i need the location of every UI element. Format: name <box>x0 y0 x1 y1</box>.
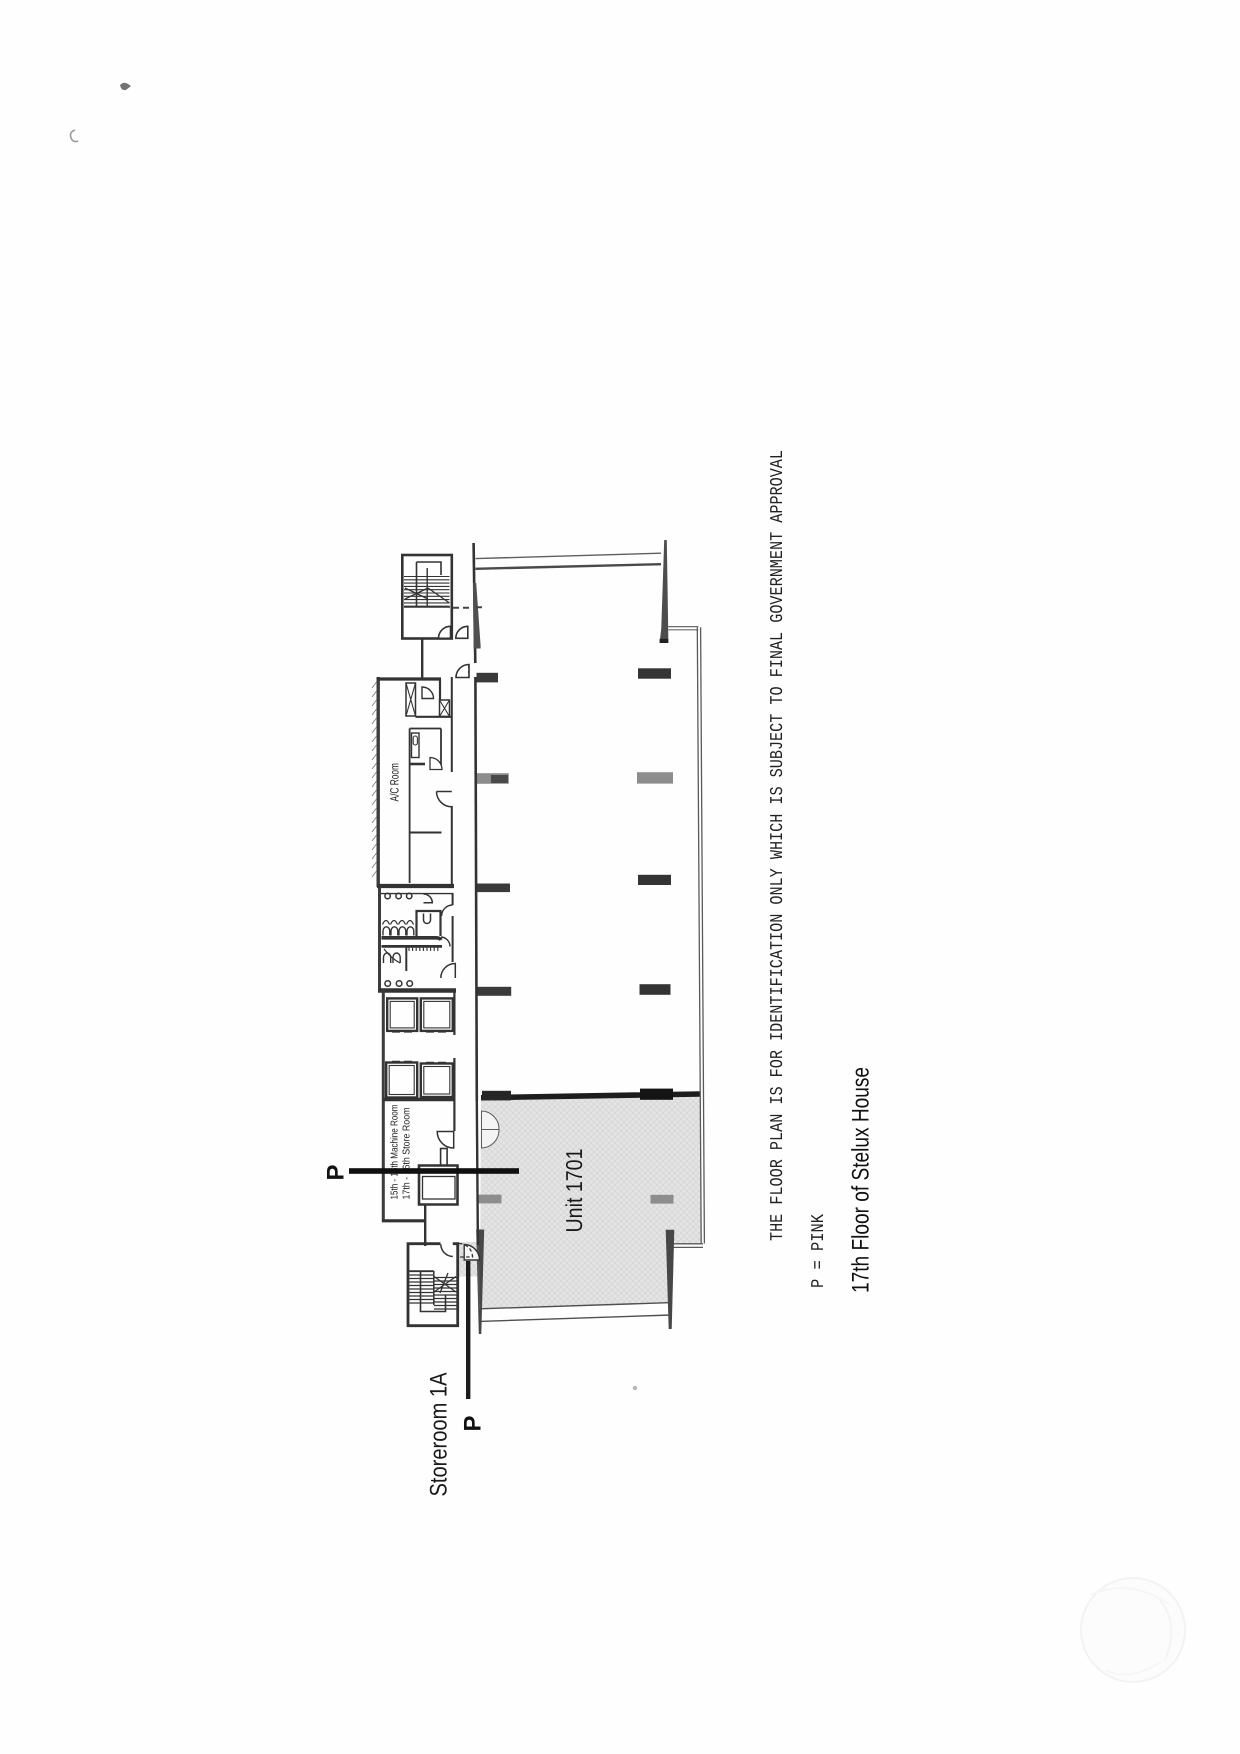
svg-text:P: P <box>460 1415 487 1431</box>
svg-text:Unit 1701: Unit 1701 <box>561 1149 587 1233</box>
svg-text:15th - 16th Machine Room: 15th - 16th Machine Room <box>390 1105 401 1200</box>
svg-text:P = PINK: P = PINK <box>809 1214 829 1288</box>
svg-text:THE FLOOR PLAN IS FOR IDENTIFI: THE FLOOR PLAN IS FOR IDENTIFICATION ONL… <box>768 450 788 1241</box>
svg-text:17th Floor of Stelux House: 17th Floor of Stelux House <box>848 1067 875 1293</box>
svg-text:Storeroom 1A: Storeroom 1A <box>426 1373 453 1497</box>
svg-text:A/C Room: A/C Room <box>388 763 402 802</box>
svg-text:17th - 16th Store Room: 17th - 16th Store Room <box>402 1108 413 1200</box>
svg-text:P: P <box>323 1164 350 1180</box>
